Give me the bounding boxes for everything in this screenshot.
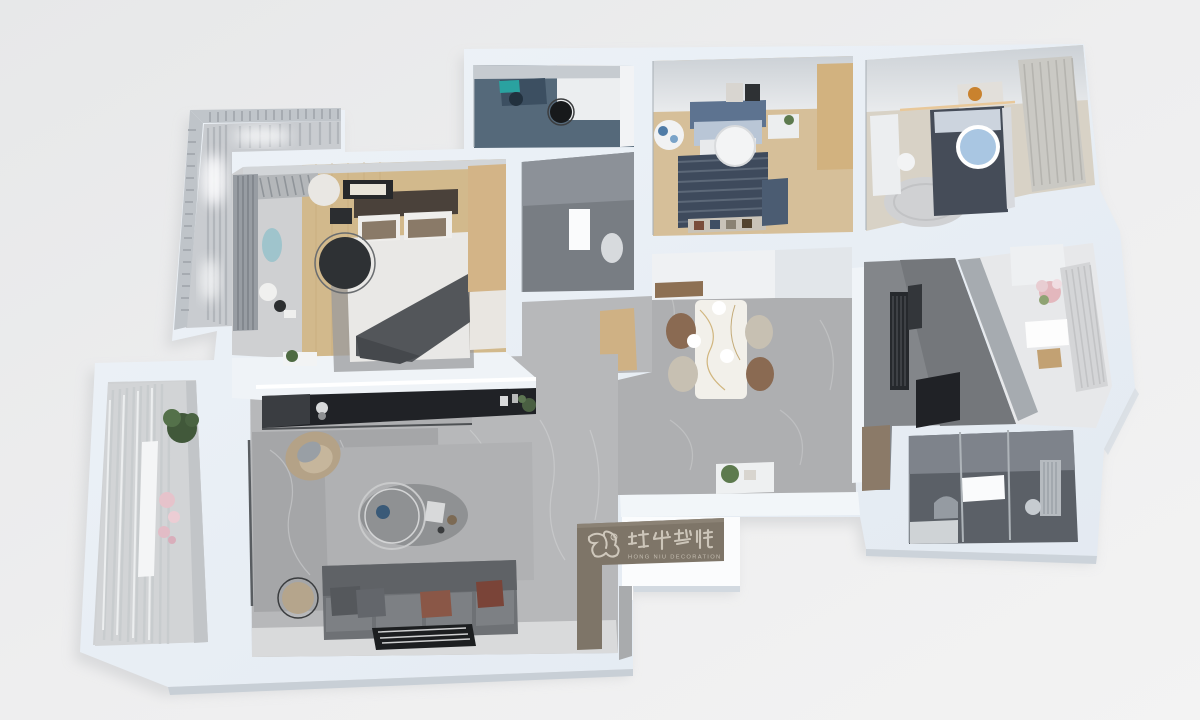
svg-text:R: R bbox=[612, 535, 615, 540]
svg-text:HONG NIU DECORATION: HONG NIU DECORATION bbox=[628, 555, 722, 561]
